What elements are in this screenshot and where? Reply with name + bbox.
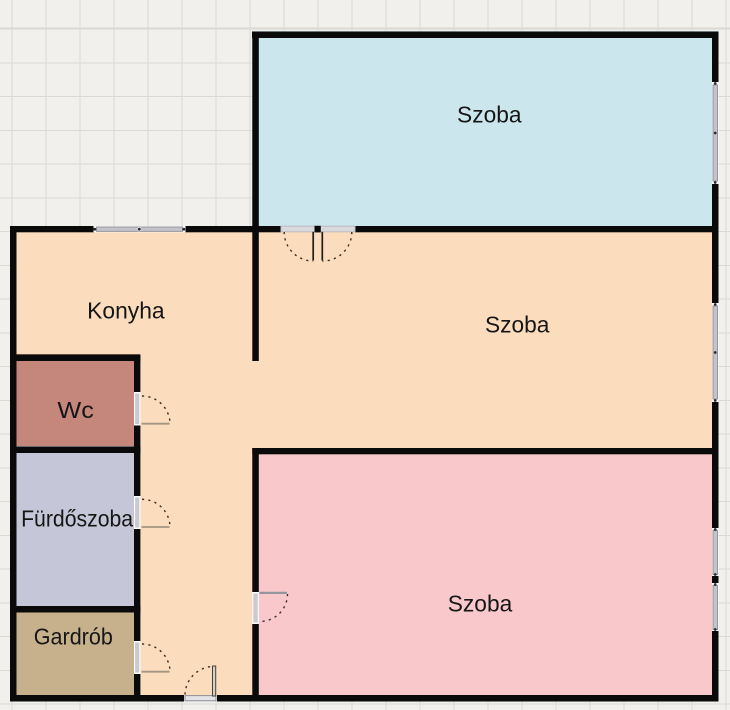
svg-text:Szoba: Szoba (457, 101, 522, 127)
svg-text:Wc: Wc (57, 397, 94, 423)
svg-text:Szoba: Szoba (485, 312, 550, 338)
svg-text:Konyha: Konyha (87, 298, 165, 324)
svg-text:Gardrób: Gardrób (34, 624, 113, 650)
svg-text:Szoba: Szoba (448, 591, 513, 617)
svg-text:Fürdőszoba: Fürdőszoba (21, 505, 133, 531)
